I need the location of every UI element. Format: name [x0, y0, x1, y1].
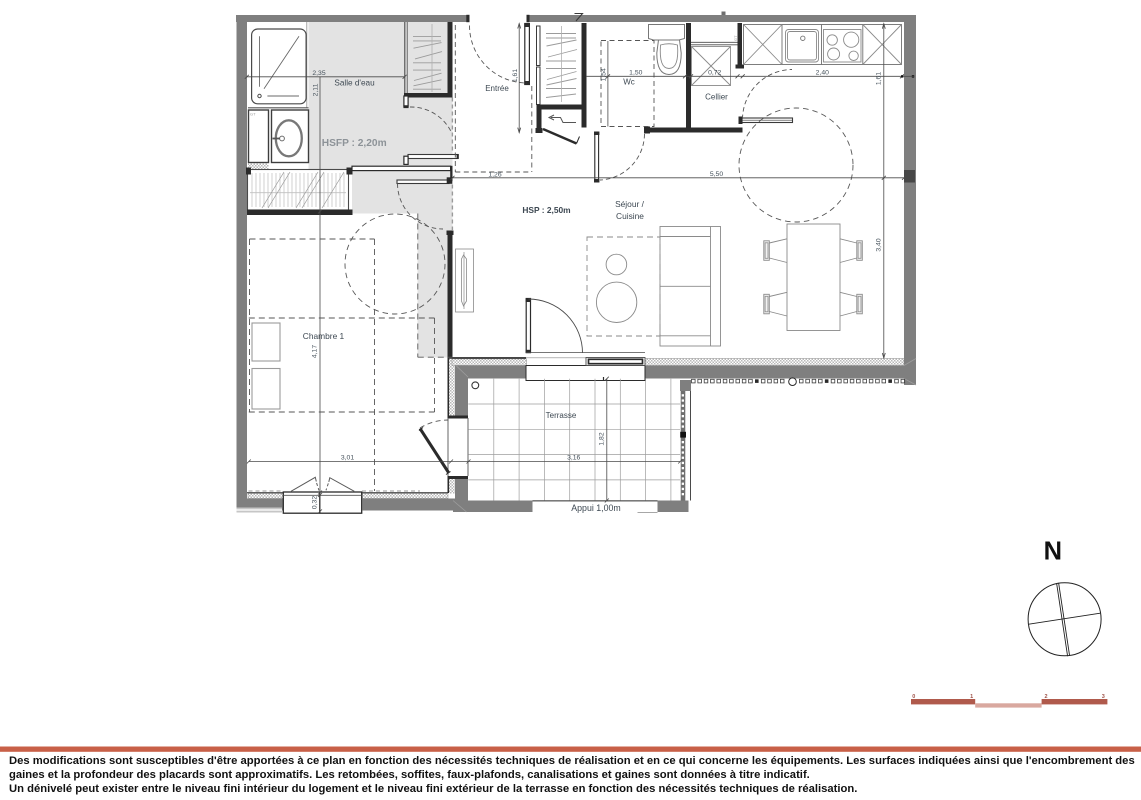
svg-text:1: 1 [970, 694, 973, 700]
svg-text:Appui 1,00m: Appui 1,00m [571, 503, 620, 513]
svg-text:5,50: 5,50 [710, 171, 723, 178]
svg-text:Un dénivelé peut exister entre: Un dénivelé peut exister entre le niveau… [9, 783, 857, 795]
svg-text:2: 2 [1044, 694, 1047, 700]
svg-text:3,01: 3,01 [341, 455, 354, 462]
svg-text:1,50: 1,50 [629, 69, 642, 76]
svg-text:2,40: 2,40 [816, 69, 829, 76]
svg-text:HSP : 2,50m: HSP : 2,50m [522, 205, 570, 215]
svg-text:Cuisine: Cuisine [616, 211, 644, 221]
svg-text:Séjour /: Séjour / [615, 199, 645, 209]
svg-text:0,32: 0,32 [311, 496, 318, 509]
svg-text:0,72: 0,72 [708, 69, 721, 76]
svg-text:GT: GT [250, 112, 256, 117]
svg-text:Wc: Wc [623, 78, 635, 87]
svg-text:N: N [1044, 538, 1062, 566]
svg-text:1,61: 1,61 [512, 69, 519, 82]
svg-text:Entrée: Entrée [485, 84, 509, 93]
svg-text:Salle d'eau: Salle d'eau [334, 79, 375, 88]
svg-text:Cellier: Cellier [705, 93, 728, 102]
svg-text:1,54: 1,54 [601, 68, 608, 81]
svg-text:3,16: 3,16 [567, 455, 580, 462]
svg-text:3,40: 3,40 [876, 238, 883, 251]
svg-text:HSFP : 2,20m: HSFP : 2,20m [322, 138, 387, 149]
svg-text:1,61: 1,61 [876, 72, 883, 85]
svg-text:1,82: 1,82 [598, 432, 605, 445]
svg-text:4,17: 4,17 [312, 345, 319, 358]
svg-text:3: 3 [1102, 694, 1105, 700]
svg-text:Chambre 1: Chambre 1 [303, 331, 345, 341]
svg-text:1,26: 1,26 [488, 171, 501, 178]
svg-text:2,35: 2,35 [312, 70, 325, 77]
svg-text:Des modifications sont suscept: Des modifications sont susceptibles d'êt… [9, 755, 1135, 767]
svg-text:2,11: 2,11 [313, 83, 320, 96]
svg-text:GT: GT [733, 35, 738, 41]
svg-text:Terrasse: Terrasse [546, 411, 577, 420]
svg-text:gaines et la profondeur des pl: gaines et la profondeur des placards son… [9, 769, 810, 781]
svg-text:0: 0 [912, 694, 915, 700]
